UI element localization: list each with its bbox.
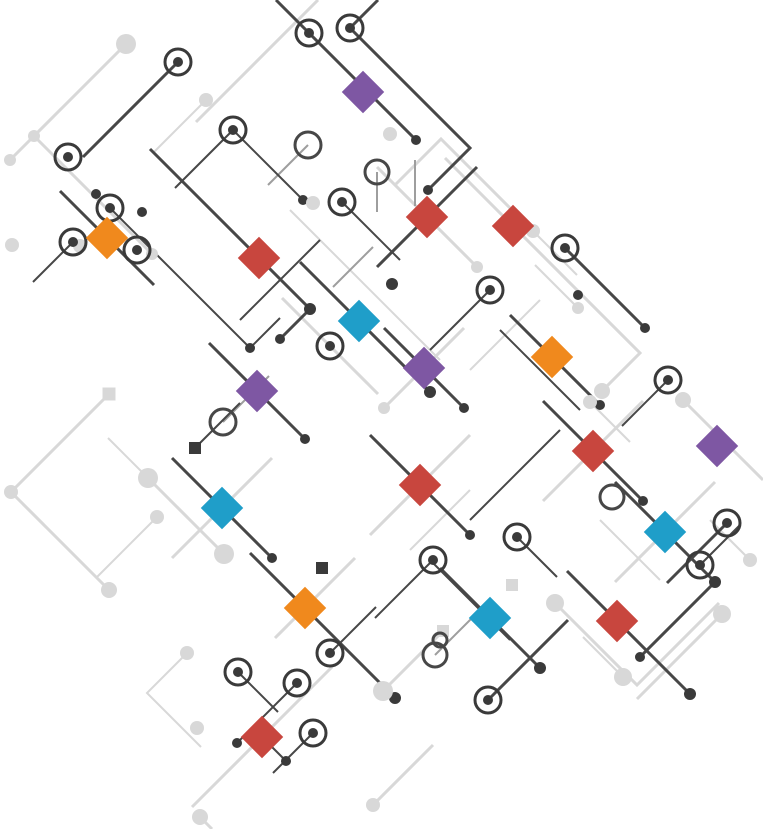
dot-node [675,392,691,408]
dot-node [640,323,650,333]
dot-node [300,434,310,444]
dot-node [635,652,645,662]
dot-node [275,334,285,344]
dot-node [378,402,390,414]
dot-node [459,403,469,413]
dot-node [684,688,696,700]
dot-node [245,343,255,353]
dot-node [373,681,393,701]
dot-node [583,395,597,409]
square-node [506,579,518,591]
target-dot [68,237,78,247]
target-dot [337,197,347,207]
dot-node [267,553,277,563]
dot-node [232,738,242,748]
target-dot [132,245,142,255]
dot-node [572,302,584,314]
square-node [189,442,201,454]
dot-node [180,646,194,660]
dot-node [199,93,213,107]
target-dot [325,648,335,658]
dot-node [743,553,757,567]
square-node [103,388,116,401]
target-dot [173,57,183,67]
dot-node [423,185,433,195]
target-dot [105,203,115,213]
dot-node [411,135,421,145]
target-dot [228,125,238,135]
target-dot [722,518,732,528]
target-dot [512,532,522,542]
target-dot [663,375,673,385]
target-dot [233,667,243,677]
dot-node [614,668,632,686]
dot-node [465,530,475,540]
dot-node [546,594,564,612]
dot-node [424,386,436,398]
target-dot [308,728,318,738]
dot-node [709,576,721,588]
dot-node [91,189,101,199]
dot-node [4,154,16,166]
square-node [316,562,328,574]
dot-node [304,303,316,315]
circuit-pattern-artwork [0,0,763,829]
target-dot [345,23,355,33]
circuit-svg [0,0,763,829]
target-dot [325,341,335,351]
dot-node [306,196,320,210]
dot-node [5,238,19,252]
dot-node [281,756,291,766]
dot-node [138,468,158,488]
dot-node [101,582,117,598]
dot-node [573,290,583,300]
target-dot [695,560,705,570]
dot-node [137,207,147,217]
target-dot [483,695,493,705]
dot-node [214,544,234,564]
dot-node [190,721,204,735]
dot-node [4,485,18,499]
target-dot [485,285,495,295]
dot-node [383,127,397,141]
dot-node [116,34,136,54]
target-dot [63,152,73,162]
dot-node [471,261,483,273]
dot-node [713,605,731,623]
dot-node [638,496,648,506]
target-dot [304,28,314,38]
dot-node [386,278,398,290]
dot-node [534,662,546,674]
dot-node [28,130,40,142]
dot-node [594,383,610,399]
target-dot [292,678,302,688]
dot-node [366,798,380,812]
target-dot [428,555,438,565]
dot-node [192,809,208,825]
target-dot [560,243,570,253]
dot-node [150,510,164,524]
